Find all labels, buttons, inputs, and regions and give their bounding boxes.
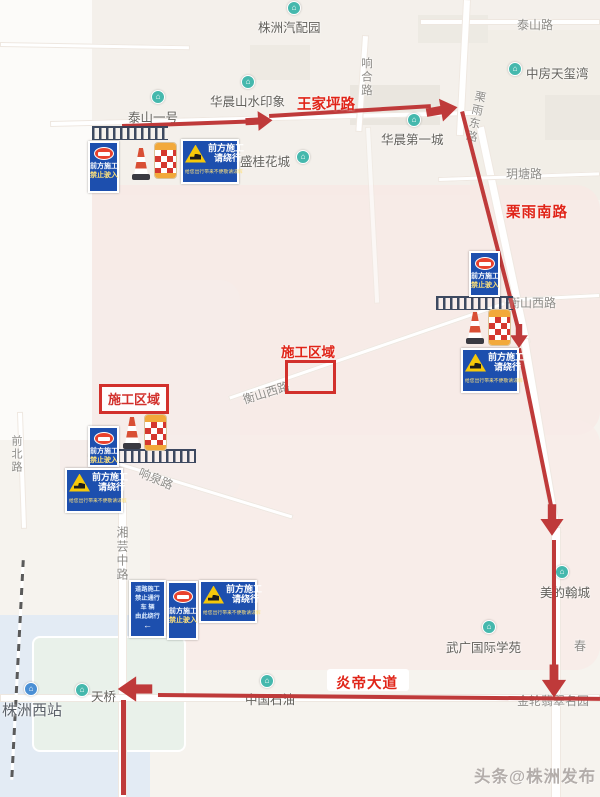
map-building-block <box>250 45 310 80</box>
construction-warning-icon <box>203 586 224 604</box>
sign-text: 请绕行 <box>232 594 262 605</box>
poi-label-tianqiao: 天桥 <box>91 686 116 705</box>
watermark: 头条@株洲发布 <box>474 763 596 787</box>
sign-text: 请绕行 <box>494 362 524 373</box>
sign-text: 前方施工 <box>90 162 117 171</box>
map: 泰山路 响合路 栗雨东路 玥塘路 衡山西路 衡山西路 响泉路 前北路 湘芸中路 … <box>0 0 600 797</box>
poi-label-china-petroleum: 中国石油 <box>245 689 295 708</box>
route-arrow-down <box>540 504 563 536</box>
detour-construction-sign: 前方施工 请绕行 给您出行带来不便敬请谅解 <box>199 580 257 623</box>
barrier-fence <box>436 296 513 310</box>
road-label-liyu-south: 栗雨南路 <box>506 201 568 222</box>
detour-construction-sign: 前方施工 请绕行 给您出行带来不便敬请谅解 <box>65 468 123 513</box>
no-entry-construction-sign: 前方施工 禁止驶入 <box>469 251 500 297</box>
barrier-fence <box>92 126 168 140</box>
traffic-barrel-icon <box>144 414 167 451</box>
poi-icon: ⌂ <box>508 62 522 76</box>
sign-text: 前方施工 <box>488 352 524 362</box>
poi-icon: ⌂ <box>241 75 255 89</box>
poi-label-meidi-hancheng: 美的翰城 <box>540 582 590 601</box>
poi-label-huachen-diyicheng: 华晨第一城 <box>381 129 444 148</box>
sign-text: 禁止通行 <box>132 594 163 603</box>
poi-icon: ⌂ <box>75 683 89 697</box>
poi-icon: ⌂ <box>287 1 301 15</box>
road-taishan <box>420 19 600 25</box>
sign-text: 禁止驶入 <box>169 616 196 625</box>
sign-text: 禁止驶入 <box>90 171 117 180</box>
construction-zone-boxed-label: 施工区域 <box>99 384 169 414</box>
traffic-cone-icon <box>131 147 151 180</box>
no-entry-construction-sign: 前方施工 禁止驶入 <box>88 141 119 193</box>
route-segment <box>121 700 126 795</box>
sign-text: 请绕行 <box>214 153 244 164</box>
no-entry-icon <box>173 590 193 603</box>
poi-icon: ⌂ <box>555 565 569 579</box>
poi-icon: ⌂ <box>260 674 274 688</box>
route-arrow-down <box>510 324 528 348</box>
barrier-fence <box>117 449 196 463</box>
poi-label-zhongfang-tianxiwan: 中房天玺湾 <box>526 63 589 82</box>
sign-text: 由此绕行 <box>132 612 163 621</box>
sign-text: 前方施工 <box>471 272 498 281</box>
construction-warning-icon <box>185 145 206 163</box>
detour-construction-sign: 前方施工 请绕行 给您出行带来不便敬请谅解 <box>461 348 519 393</box>
sign-text: 前方施工 <box>208 143 244 153</box>
poi-icon: ⌂ <box>296 150 310 164</box>
sign-text: 前方施工 <box>90 447 117 456</box>
poi-icon: ⌂ <box>407 113 421 127</box>
poi-label-zhuzhou-west-station: 株洲西站 <box>2 699 62 720</box>
poi-label-sheng-guihuacheng: 盛桂花城 <box>240 151 290 170</box>
sign-text: 车 辆 <box>132 603 163 612</box>
poi-label-zhuzhou-auto-park: 株洲汽配园 <box>258 17 321 36</box>
map-area-tint <box>0 0 92 440</box>
road-label-yuetang: 玥塘路 <box>506 165 542 182</box>
road-label-xiangyun-middle: 湘芸中路 <box>114 526 131 582</box>
traffic-cone-icon <box>122 416 142 449</box>
detour-construction-sign: 前方施工 请绕行 给您出行带来不便敬请谅解 <box>181 139 239 184</box>
road-label-wangjiaping: 王家坪路 <box>297 93 355 114</box>
no-entry-icon <box>475 257 495 270</box>
poi-label-wuguang-international: 武广国际学苑 <box>446 637 521 656</box>
no-entry-icon <box>94 147 114 160</box>
map-building-block <box>545 95 600 140</box>
left-arrow-glyph: ← <box>131 621 164 630</box>
no-entry-construction-sign: 前方施工 禁止驶入 <box>88 426 119 467</box>
construction-zone-box <box>285 360 336 394</box>
poi-icon: ⌂ <box>151 90 165 104</box>
route-arrow-left <box>118 676 153 701</box>
road-label-yandi-avenue: 炎帝大道 <box>336 672 398 693</box>
sign-note: 给您出行带来不便敬请谅解 <box>465 377 513 384</box>
road-label-xianghe: 响合路 <box>358 57 374 98</box>
sign-text: 前方施工 <box>226 584 262 594</box>
detour-direction-sign: 道路施工 禁止通行 车 辆 由此绕行 ← <box>129 580 166 638</box>
sign-note: 给您出行带来不便敬请谅解 <box>185 168 233 175</box>
traffic-barrel-icon <box>154 142 177 179</box>
sign-text: 禁止驶入 <box>90 456 117 465</box>
route-arrow-down <box>542 665 566 698</box>
poi-label-huachen-shanshui: 华晨山水印象 <box>210 91 285 110</box>
poi-icon: ⌂ <box>482 620 496 634</box>
construction-warning-icon <box>69 474 90 492</box>
construction-zone-label: 施工区域 <box>281 341 335 361</box>
sign-text: 前方施工 <box>92 472 128 482</box>
no-entry-construction-sign: 前方施工 禁止驶入 <box>167 581 198 640</box>
route-segment <box>552 540 556 670</box>
road-label-taishan: 泰山路 <box>517 16 553 33</box>
road-label-qianbei: 前北路 <box>8 435 24 474</box>
sign-text: 禁止驶入 <box>471 281 498 290</box>
station-icon: ⌂ <box>24 682 38 696</box>
sign-text: 道路施工 <box>132 585 163 594</box>
construction-warning-icon <box>465 354 486 372</box>
sign-text: 请绕行 <box>98 482 128 493</box>
traffic-barrel-icon <box>488 309 511 346</box>
sign-text: 前方施工 <box>169 607 196 616</box>
traffic-cone-icon <box>465 311 485 344</box>
sign-note: 给您出行带来不便敬请谅解 <box>203 609 251 616</box>
sign-note: 给您出行带来不便敬请谅解 <box>69 497 117 504</box>
road-label-chun: 春 <box>574 637 586 654</box>
no-entry-icon <box>94 432 114 445</box>
